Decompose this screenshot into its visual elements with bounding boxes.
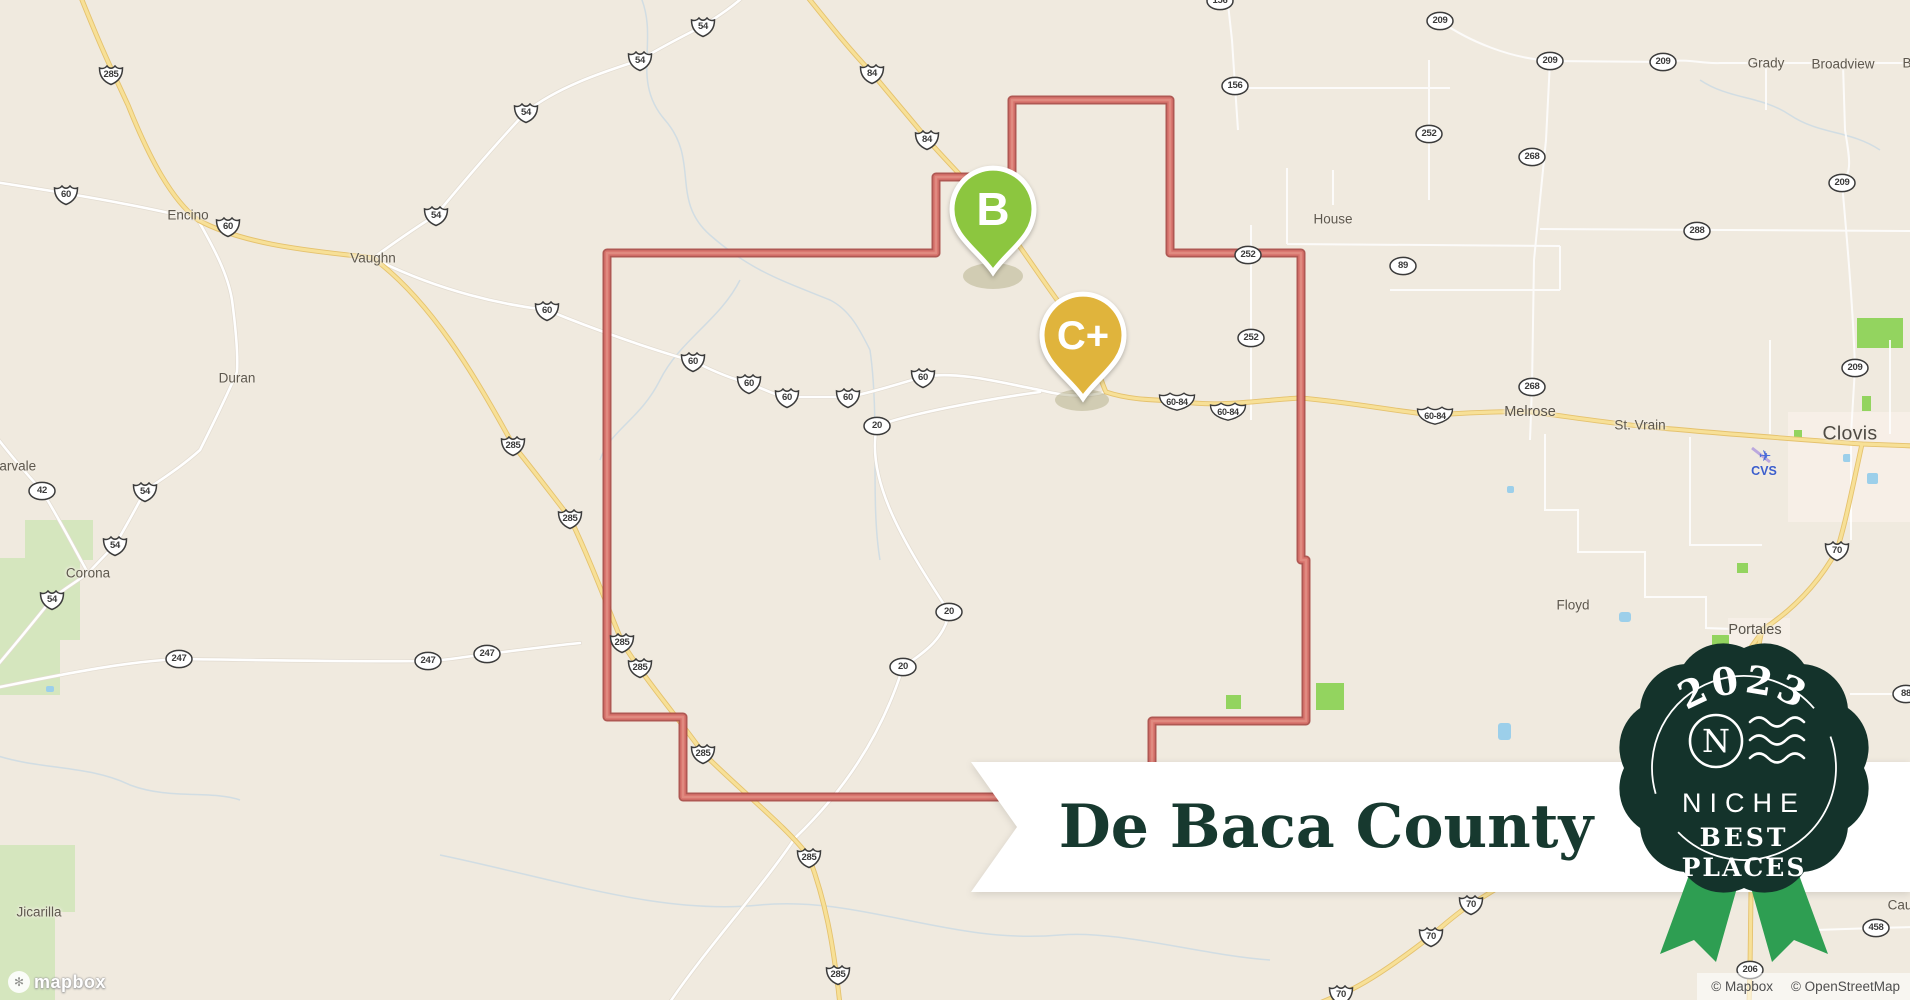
mapbox-mark-icon: ✻ bbox=[8, 971, 30, 993]
mapbox-logo[interactable]: ✻ mapbox bbox=[8, 971, 106, 993]
map-canvas[interactable]: ✈ 54 54 54 54 5 bbox=[0, 0, 1910, 1000]
attribution-osm-link[interactable]: © OpenStreetMap bbox=[1791, 979, 1900, 994]
county-title: De Baca County bbox=[971, 762, 1681, 892]
mapbox-wordmark: mapbox bbox=[34, 972, 106, 993]
badge-best: BEST bbox=[1700, 823, 1789, 852]
attribution-mapbox-link[interactable]: © Mapbox bbox=[1711, 979, 1773, 994]
niche-n-letter: N bbox=[1702, 722, 1730, 760]
attribution-bar: © Mapbox © OpenStreetMap bbox=[1697, 973, 1910, 1000]
badge-brand: NICHE bbox=[1682, 788, 1806, 818]
niche-badge: 2023 N NICHE BEST PLACES bbox=[1584, 628, 1904, 978]
badge-places: PLACES bbox=[1682, 853, 1807, 882]
